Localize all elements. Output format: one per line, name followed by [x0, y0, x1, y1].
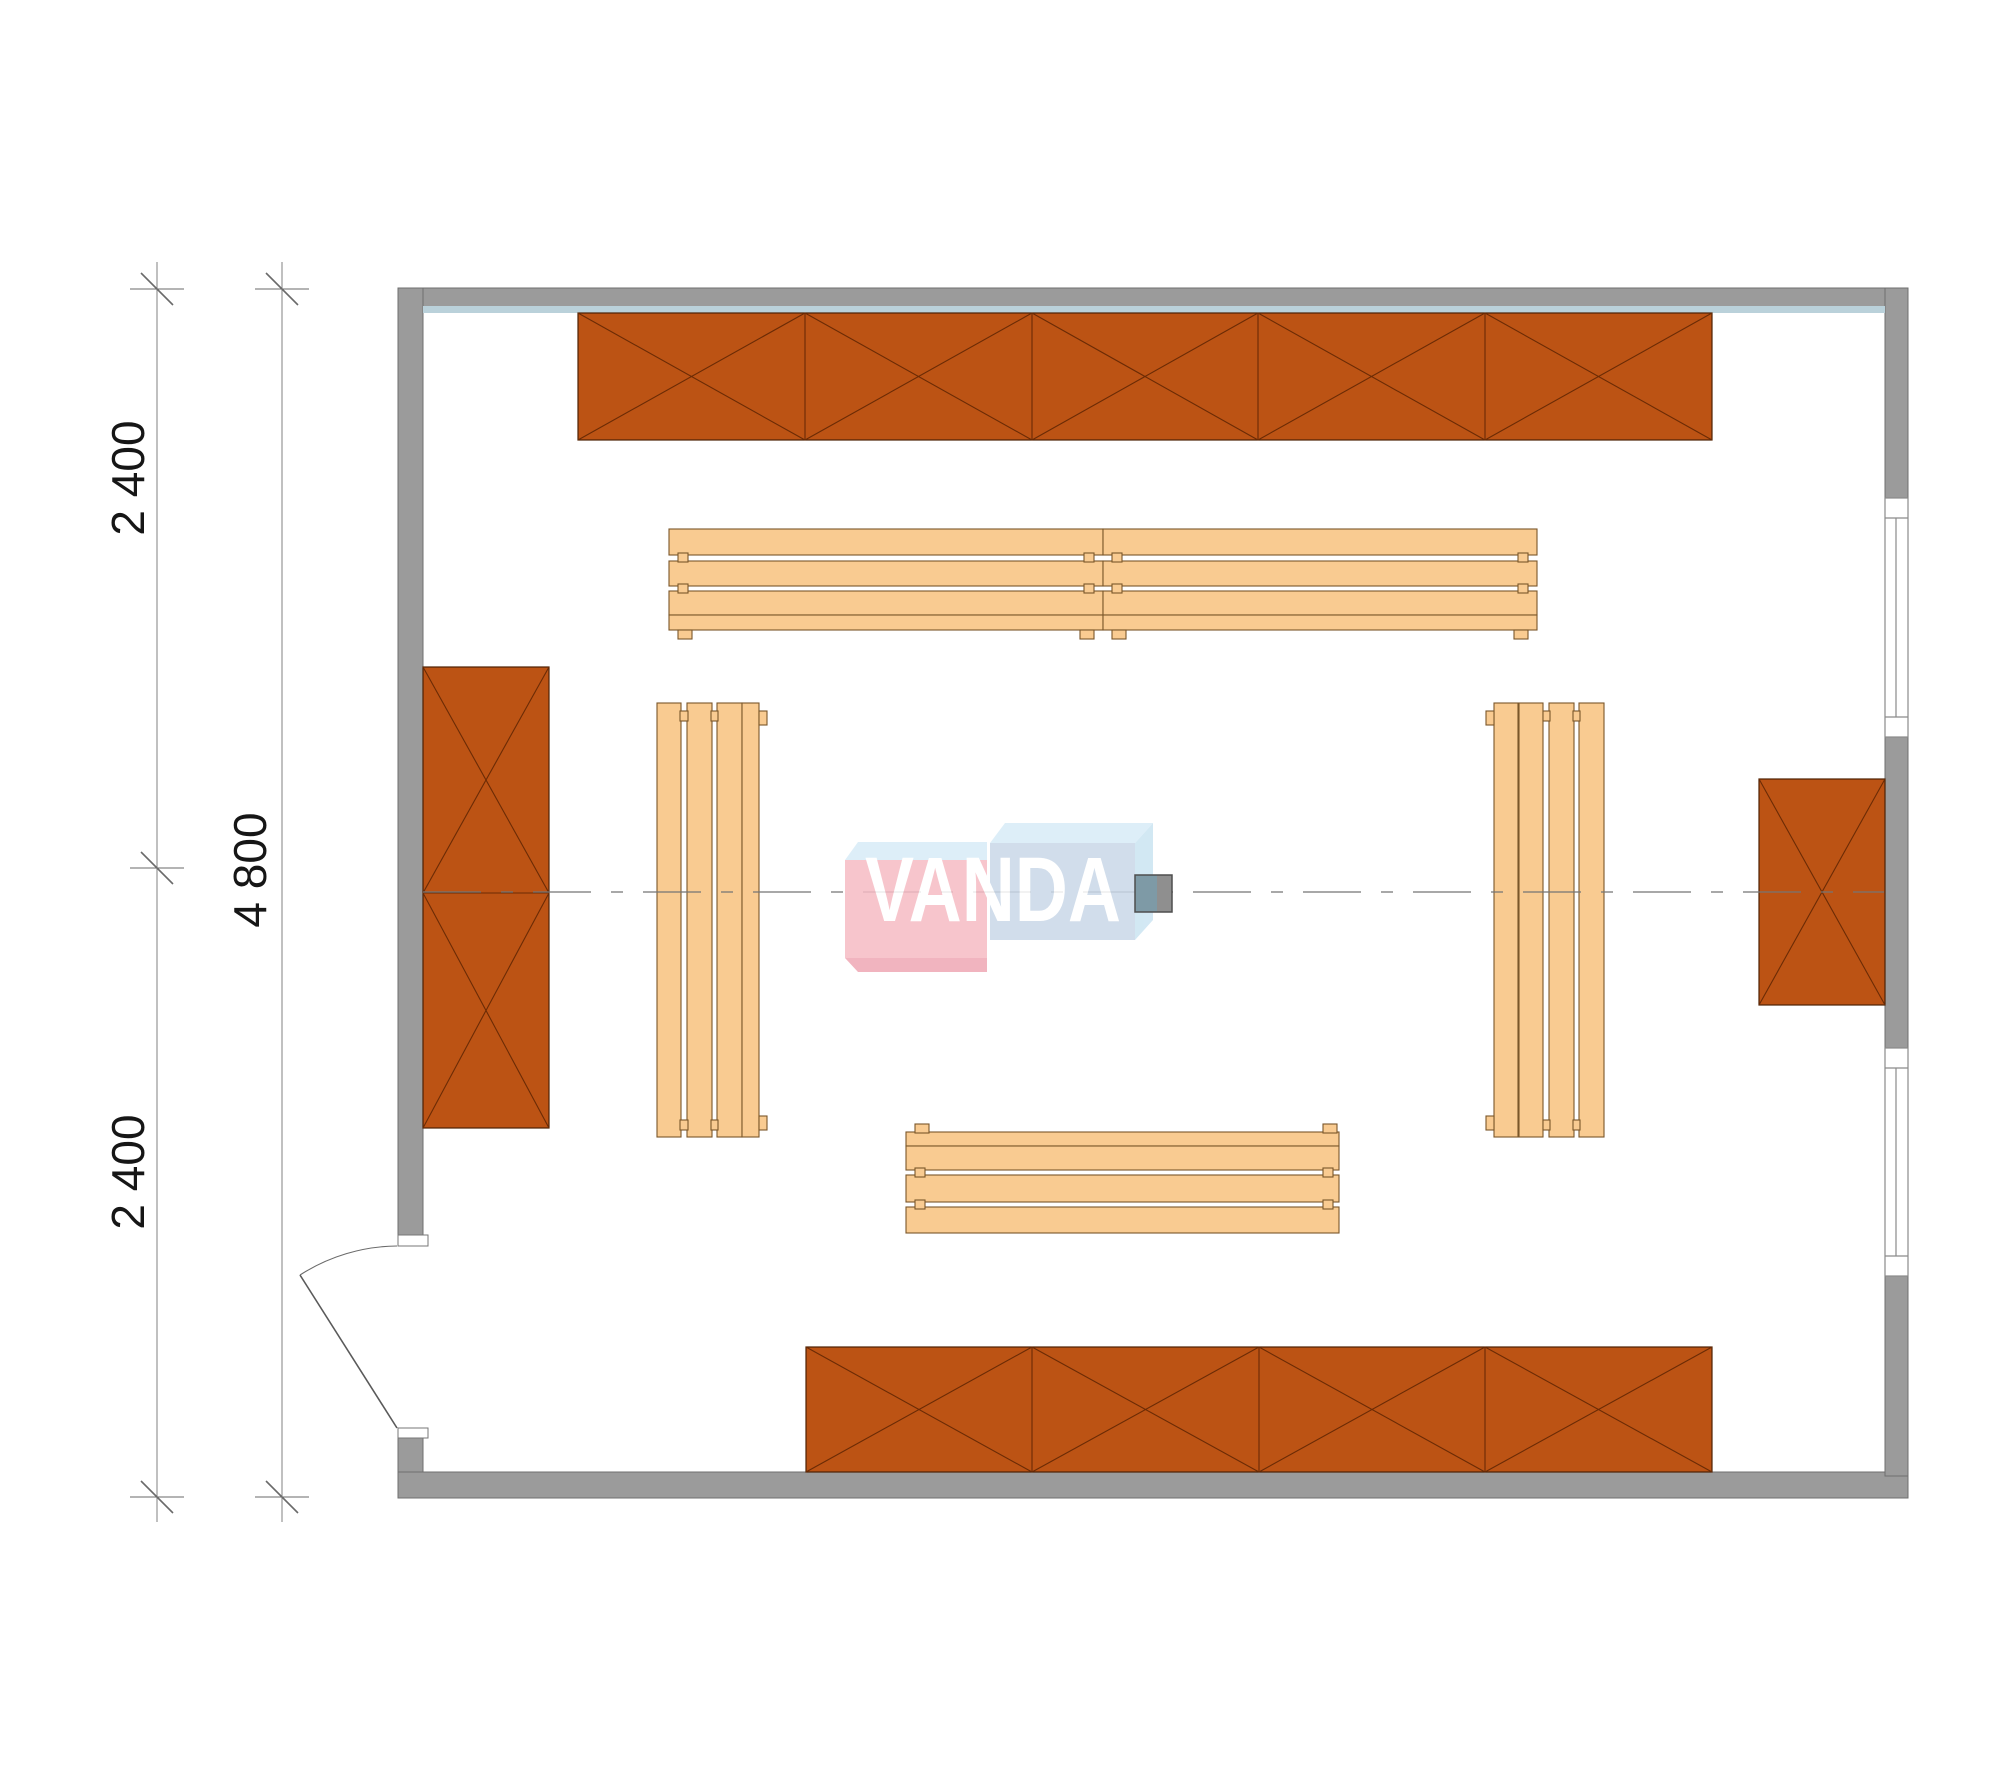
watermark-pink-bottom-face	[845, 958, 987, 972]
dimension-label-upper: 2 400	[102, 420, 154, 535]
wall-left	[398, 288, 423, 1235]
dimension-label-total: 4 800	[224, 812, 276, 927]
cabinet-left	[423, 667, 549, 1128]
door-leaf	[300, 1275, 397, 1428]
vanda-watermark: VANDA	[845, 823, 1153, 972]
bench-right	[1486, 703, 1604, 1137]
door-jamb-top	[398, 1235, 428, 1246]
sauna-heater	[1135, 875, 1172, 912]
bench-left	[657, 703, 767, 1137]
wall-right-upper	[1885, 288, 1908, 498]
dimension-labels: 2 400 4 800 2 400	[102, 420, 276, 1229]
wall-liner-strip	[423, 306, 1885, 313]
door-jamb-bottom	[398, 1428, 428, 1438]
window-right-lower	[1885, 1048, 1908, 1276]
dimension-label-lower: 2 400	[102, 1114, 154, 1229]
wall-bottom	[398, 1472, 1908, 1498]
wall-right-middle	[1885, 737, 1908, 1048]
heater-body	[1135, 875, 1157, 912]
window-right-upper	[1885, 498, 1908, 737]
floor-plan-page: 2 400 4 800 2 400	[0, 0, 2000, 1786]
entrance-door	[300, 1235, 428, 1438]
watermark-text: VANDA	[865, 839, 1121, 941]
bench-top-left	[669, 529, 1103, 639]
floor-plan-canvas: 2 400 4 800 2 400	[0, 0, 2000, 1786]
dimension-lines	[130, 262, 309, 1522]
bench-top-right	[1103, 529, 1537, 639]
door-swing-arc	[300, 1246, 397, 1275]
bench-bottom	[906, 1124, 1339, 1233]
heater-side	[1157, 875, 1172, 912]
wall-right-lower	[1885, 1276, 1908, 1476]
